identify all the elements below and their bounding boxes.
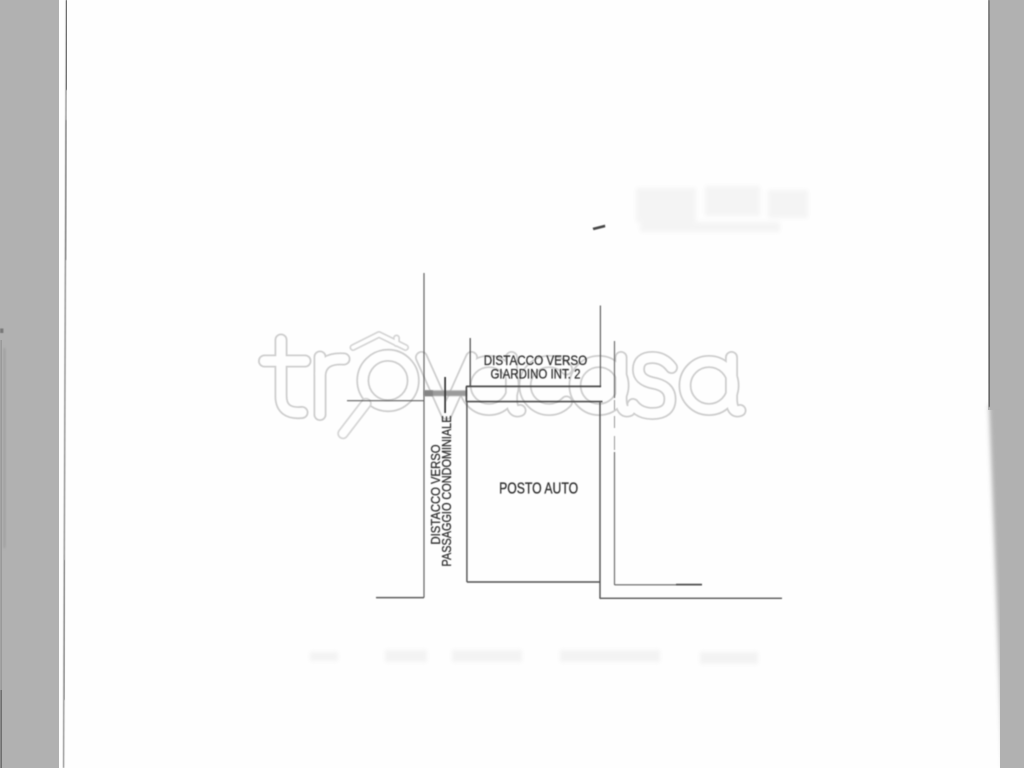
svg-text:GIARDINO INT. 2: GIARDINO INT. 2 (491, 367, 581, 383)
svg-text:POSTO AUTO: POSTO AUTO (499, 480, 578, 497)
svg-text:PASSAGGIO CONDOMINIALE: PASSAGGIO CONDOMINIALE (439, 415, 454, 566)
